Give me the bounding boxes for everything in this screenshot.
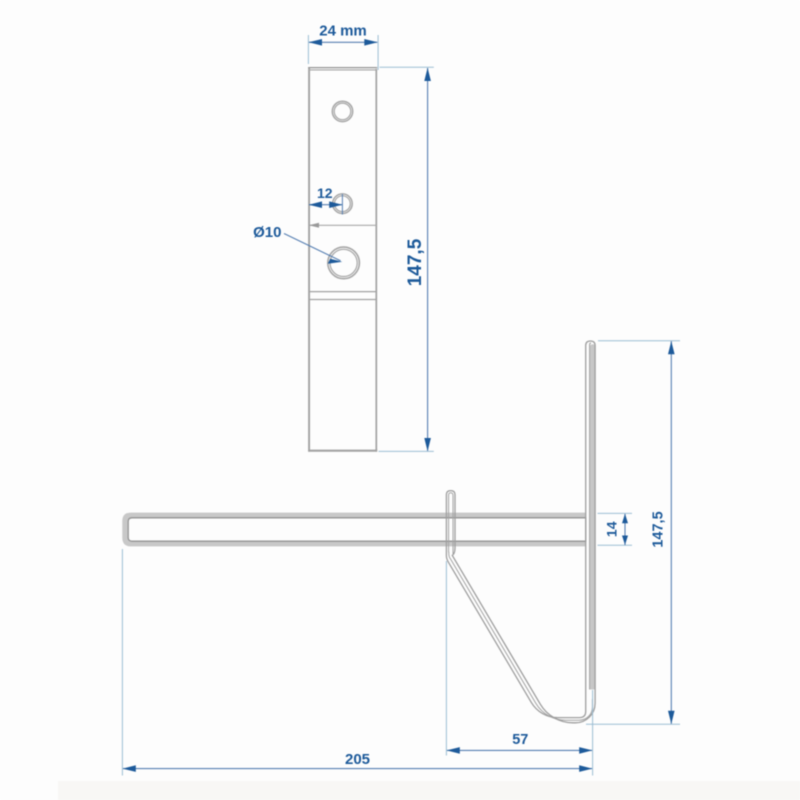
- svg-text:205: 205: [345, 751, 370, 768]
- svg-text:12: 12: [317, 185, 333, 201]
- svg-text:147,5: 147,5: [650, 511, 666, 547]
- svg-text:57: 57: [512, 732, 528, 748]
- svg-text:24 mm: 24 mm: [319, 23, 367, 40]
- svg-text:147,5: 147,5: [405, 238, 426, 286]
- svg-text:14: 14: [603, 521, 619, 537]
- svg-text:Ø10: Ø10: [253, 224, 281, 241]
